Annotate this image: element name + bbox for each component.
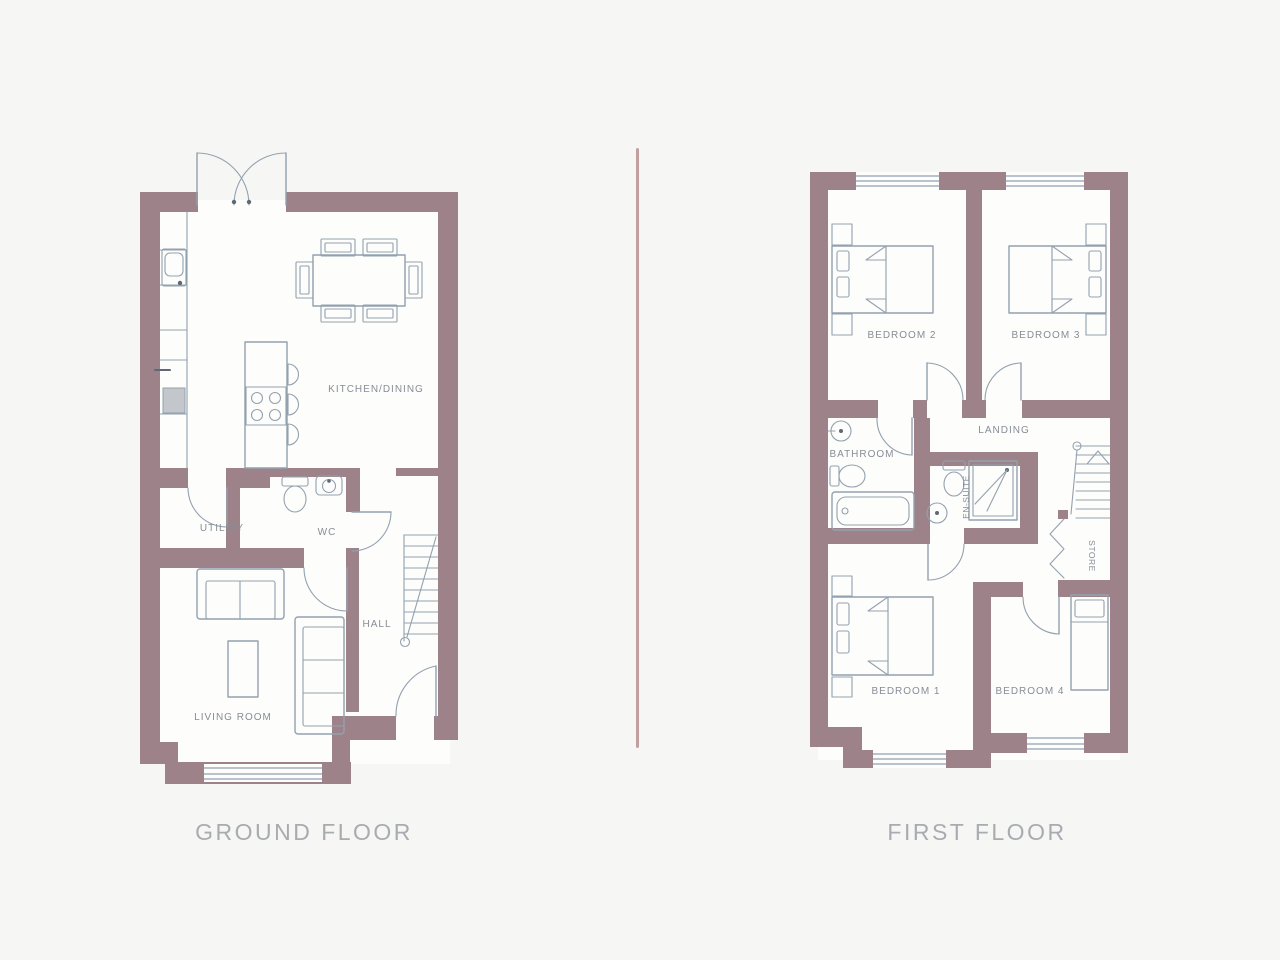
- kitchen-dining-label: KITCHEN/DINING: [328, 384, 424, 395]
- ground-floor-plan: KITCHEN/DINING UTILITY WC HALL LIVING RO…: [140, 153, 458, 784]
- bedroom4-label: BEDROOM 4: [995, 686, 1064, 697]
- floorplan-page: KITCHEN/DINING UTILITY WC HALL LIVING RO…: [0, 0, 1280, 960]
- bedroom2-window: [856, 172, 939, 190]
- bathroom-label: BATHROOM: [829, 449, 894, 460]
- bedroom1-window: [873, 750, 946, 768]
- first-floor-title: FIRST FLOOR: [887, 819, 1066, 846]
- plans-divider-line: [636, 148, 639, 748]
- living-room-label: LIVING ROOM: [194, 712, 272, 723]
- bedroom3-label: BEDROOM 3: [1011, 330, 1080, 341]
- floorplan-drawing: KITCHEN/DINING UTILITY WC HALL LIVING RO…: [0, 0, 1280, 960]
- utility-label: UTILITY: [200, 523, 244, 534]
- ground-floor-title: GROUND FLOOR: [195, 819, 413, 846]
- french-doors: [197, 153, 286, 205]
- landing-label: LANDING: [978, 425, 1029, 436]
- bedroom4-window: [1027, 733, 1084, 753]
- living-room-bay-window: [204, 764, 322, 782]
- ensuite-label: EN-SUITE: [961, 475, 971, 519]
- hall-label: HALL: [362, 619, 391, 630]
- bedroom2-label: BEDROOM 2: [867, 330, 936, 341]
- first-floor-plan: BEDROOM 2 BEDROOM 3 LANDING BATHROOM EN-…: [810, 172, 1128, 768]
- bedroom1-label: BEDROOM 1: [871, 686, 940, 697]
- bedroom3-window: [1006, 172, 1084, 190]
- wc-label: WC: [318, 527, 337, 538]
- store-label: STORE: [1087, 540, 1097, 572]
